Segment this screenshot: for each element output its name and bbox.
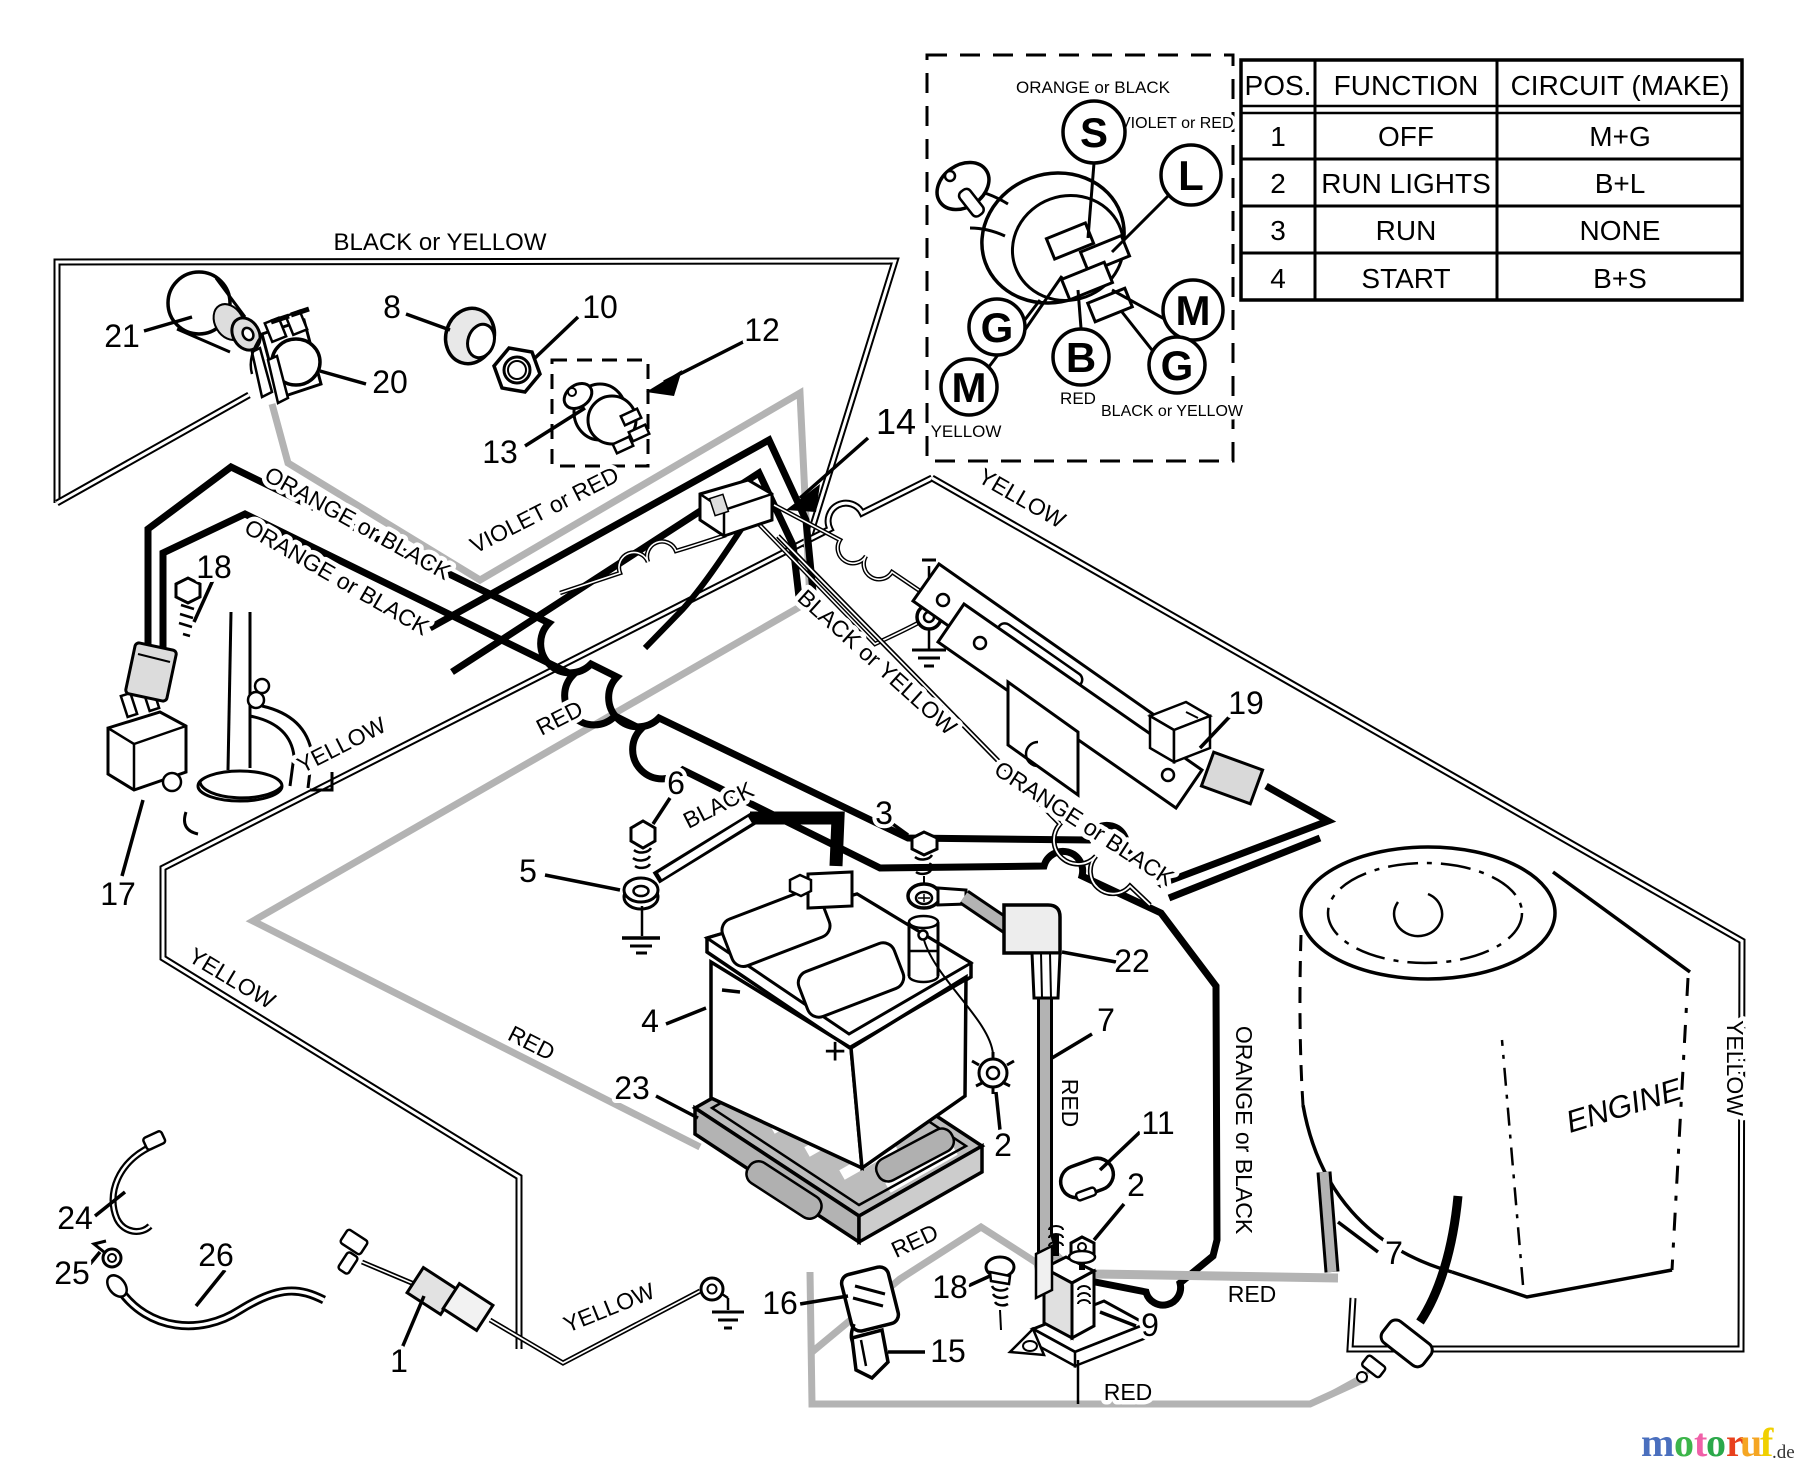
svg-text:BLACK or YELLOW: BLACK or YELLOW bbox=[334, 229, 547, 256]
svg-text:CIRCUIT (MAKE): CIRCUIT (MAKE) bbox=[1511, 70, 1730, 101]
svg-text:G: G bbox=[1161, 342, 1194, 389]
svg-text:7: 7 bbox=[1385, 1235, 1403, 1271]
svg-text:5: 5 bbox=[519, 853, 537, 889]
svg-text:7: 7 bbox=[1097, 1002, 1115, 1038]
svg-text:o: o bbox=[1674, 1420, 1694, 1465]
svg-text:YELLOW: YELLOW bbox=[1722, 1020, 1748, 1116]
svg-text:3: 3 bbox=[875, 795, 893, 831]
svg-text:OFF: OFF bbox=[1378, 121, 1434, 152]
svg-text:ORANGE or BLACK: ORANGE or BLACK bbox=[1016, 78, 1171, 97]
svg-text:11: 11 bbox=[1141, 1105, 1174, 1141]
svg-text:4: 4 bbox=[1270, 263, 1286, 294]
svg-text:1: 1 bbox=[390, 1343, 408, 1379]
svg-text:17: 17 bbox=[100, 876, 136, 912]
svg-text:22: 22 bbox=[1114, 943, 1150, 979]
svg-text:RED: RED bbox=[1057, 1079, 1083, 1128]
svg-text:YELLOW: YELLOW bbox=[931, 422, 1002, 441]
svg-text:10: 10 bbox=[582, 289, 618, 325]
svg-text:19: 19 bbox=[1228, 685, 1264, 721]
svg-text:21: 21 bbox=[104, 318, 140, 354]
svg-text:4: 4 bbox=[641, 1003, 659, 1039]
svg-text:8: 8 bbox=[383, 289, 401, 325]
svg-text:FUNCTION: FUNCTION bbox=[1334, 70, 1479, 101]
svg-text:12: 12 bbox=[744, 312, 780, 348]
svg-text:.de: .de bbox=[1772, 1442, 1795, 1463]
svg-text:VIOLET or RED: VIOLET or RED bbox=[1120, 115, 1234, 132]
svg-text:1: 1 bbox=[1270, 121, 1286, 152]
svg-text:14: 14 bbox=[876, 401, 916, 442]
svg-text:S: S bbox=[1080, 109, 1108, 156]
svg-text:RUN LIGHTS: RUN LIGHTS bbox=[1321, 168, 1491, 199]
svg-text:24: 24 bbox=[57, 1200, 93, 1236]
svg-text:2: 2 bbox=[1127, 1167, 1145, 1203]
svg-text:u: u bbox=[1740, 1420, 1762, 1465]
svg-text:B: B bbox=[1066, 334, 1096, 381]
svg-text:NONE: NONE bbox=[1580, 215, 1661, 246]
svg-text:L: L bbox=[1178, 152, 1204, 199]
svg-text:13: 13 bbox=[482, 434, 518, 470]
svg-text:23: 23 bbox=[614, 1070, 650, 1106]
svg-text:+: + bbox=[824, 1031, 846, 1073]
svg-text:20: 20 bbox=[372, 364, 408, 400]
svg-text:B+L: B+L bbox=[1595, 168, 1646, 199]
svg-text:BLACK or YELLOW: BLACK or YELLOW bbox=[1101, 403, 1244, 420]
svg-text:2: 2 bbox=[994, 1127, 1012, 1163]
svg-text:POS.: POS. bbox=[1245, 70, 1312, 101]
svg-text:m: m bbox=[1641, 1420, 1674, 1465]
svg-text:RUN: RUN bbox=[1376, 215, 1437, 246]
svg-text:M: M bbox=[1176, 287, 1211, 334]
svg-text:RED: RED bbox=[1228, 1281, 1277, 1307]
svg-text:2: 2 bbox=[1270, 168, 1286, 199]
svg-text:25: 25 bbox=[54, 1255, 90, 1291]
svg-text:6: 6 bbox=[667, 765, 685, 801]
svg-text:9: 9 bbox=[1141, 1307, 1159, 1343]
svg-text:G: G bbox=[981, 304, 1014, 351]
svg-text:RED: RED bbox=[1104, 1379, 1153, 1405]
svg-text:18: 18 bbox=[932, 1269, 968, 1305]
svg-text:B+S: B+S bbox=[1593, 263, 1647, 294]
svg-text:M+G: M+G bbox=[1589, 121, 1650, 152]
svg-text:16: 16 bbox=[762, 1285, 798, 1321]
svg-text:18: 18 bbox=[196, 549, 232, 585]
svg-text:M: M bbox=[952, 364, 987, 411]
svg-text:15: 15 bbox=[930, 1333, 966, 1369]
svg-text:26: 26 bbox=[198, 1237, 234, 1273]
svg-text:RED: RED bbox=[1060, 389, 1096, 408]
svg-text:ORANGE or BLACK: ORANGE or BLACK bbox=[1231, 1026, 1257, 1235]
svg-text:START: START bbox=[1361, 263, 1450, 294]
svg-text:o: o bbox=[1706, 1420, 1726, 1465]
svg-text:3: 3 bbox=[1270, 215, 1286, 246]
